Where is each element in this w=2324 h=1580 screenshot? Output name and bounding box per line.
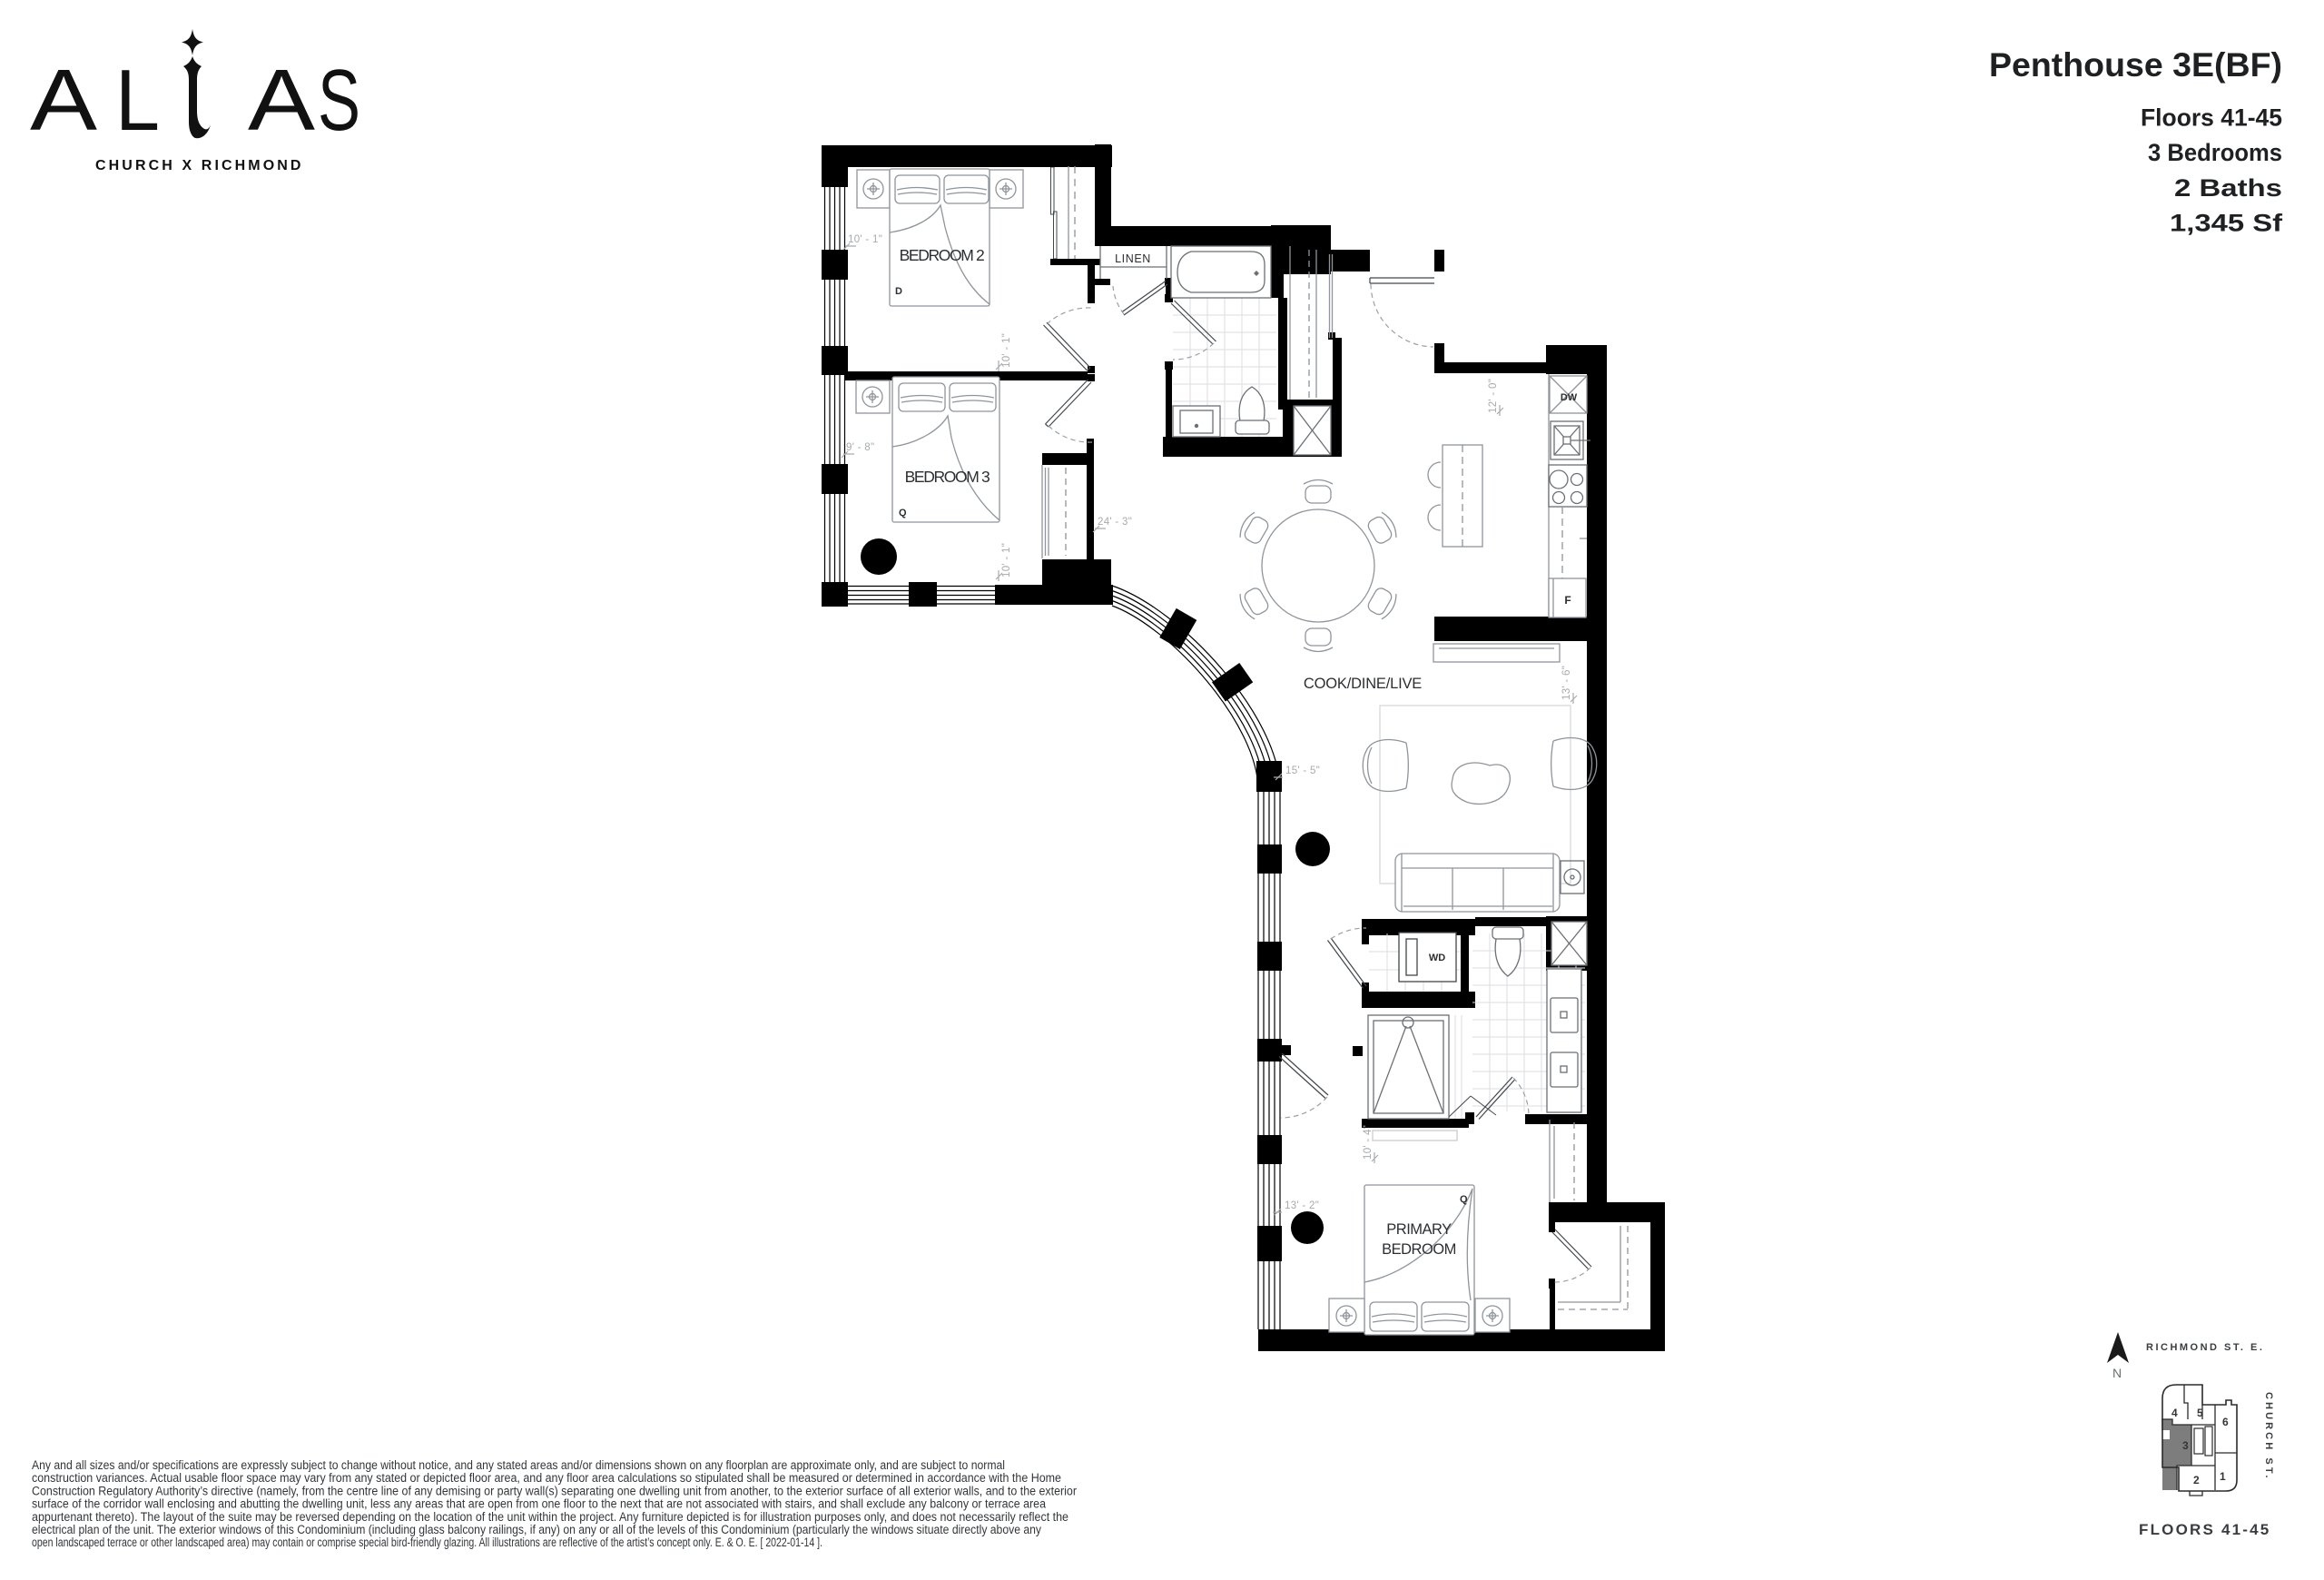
svg-text:12' - 0": 12' - 0"	[1488, 379, 1499, 413]
svg-text:15' - 5": 15' - 5"	[1285, 765, 1320, 776]
svg-text:open landscaped terrace or oth: open landscaped terrace or other landsca…	[32, 1536, 822, 1550]
svg-text:Q: Q	[1460, 1194, 1468, 1205]
svg-text:4: 4	[2171, 1407, 2178, 1419]
svg-text:1,345 Sf: 1,345 Sf	[2170, 210, 2282, 237]
svg-text:6: 6	[2222, 1416, 2229, 1428]
svg-text:BEDROOM 3: BEDROOM 3	[905, 468, 990, 486]
svg-text:BEDROOM 2: BEDROOM 2	[900, 246, 984, 264]
svg-text:D: D	[895, 286, 902, 297]
svg-text:13' - 6": 13' - 6"	[1561, 666, 1572, 700]
svg-text:10' - 4": 10' - 4"	[1363, 1125, 1374, 1160]
svg-text:WD: WD	[1429, 953, 1445, 963]
svg-text:S: S	[318, 52, 360, 149]
svg-text:PRIMARY: PRIMARY	[1386, 1221, 1452, 1238]
svg-text:24' - 3": 24' - 3"	[1098, 517, 1132, 528]
svg-text:Penthouse 3E(BF): Penthouse 3E(BF)	[1989, 46, 2282, 84]
svg-text:10' - 1": 10' - 1"	[1001, 543, 1012, 578]
svg-text:L: L	[115, 52, 160, 149]
svg-text:CHURCH X RICHMOND: CHURCH X RICHMOND	[95, 158, 304, 173]
svg-text:Floors 41-45: Floors 41-45	[2141, 104, 2282, 132]
svg-text:F: F	[1564, 594, 1571, 607]
svg-text:BEDROOM: BEDROOM	[1382, 1241, 1456, 1258]
svg-text:CHURCH ST.: CHURCH ST.	[2263, 1392, 2274, 1481]
svg-text:2: 2	[2193, 1474, 2200, 1486]
svg-text:RICHMOND ST. E.: RICHMOND ST. E.	[2146, 1342, 2264, 1353]
svg-text:1: 1	[2220, 1470, 2226, 1483]
svg-text:DW: DW	[1561, 392, 1578, 403]
svg-text:A: A	[30, 52, 97, 149]
svg-text:3 Bedrooms: 3 Bedrooms	[2148, 139, 2282, 166]
svg-text:13' - 2": 13' - 2"	[1285, 1200, 1319, 1211]
svg-text:FLOORS 41-45: FLOORS 41-45	[2139, 1521, 2270, 1538]
svg-text:10' - 1": 10' - 1"	[1001, 333, 1012, 368]
svg-text:N: N	[2112, 1366, 2122, 1380]
svg-text:10' - 1": 10' - 1"	[848, 234, 882, 245]
svg-text:COOK/DINE/LIVE: COOK/DINE/LIVE	[1304, 676, 1422, 692]
svg-text:9' - 8": 9' - 8"	[846, 442, 874, 453]
svg-text:2 Baths: 2 Baths	[2174, 174, 2282, 202]
svg-text:LINEN: LINEN	[1115, 252, 1151, 265]
svg-text:Q: Q	[899, 508, 907, 518]
svg-text:5: 5	[2197, 1407, 2203, 1419]
svg-text:A: A	[248, 52, 315, 149]
svg-text:3: 3	[2182, 1439, 2189, 1452]
